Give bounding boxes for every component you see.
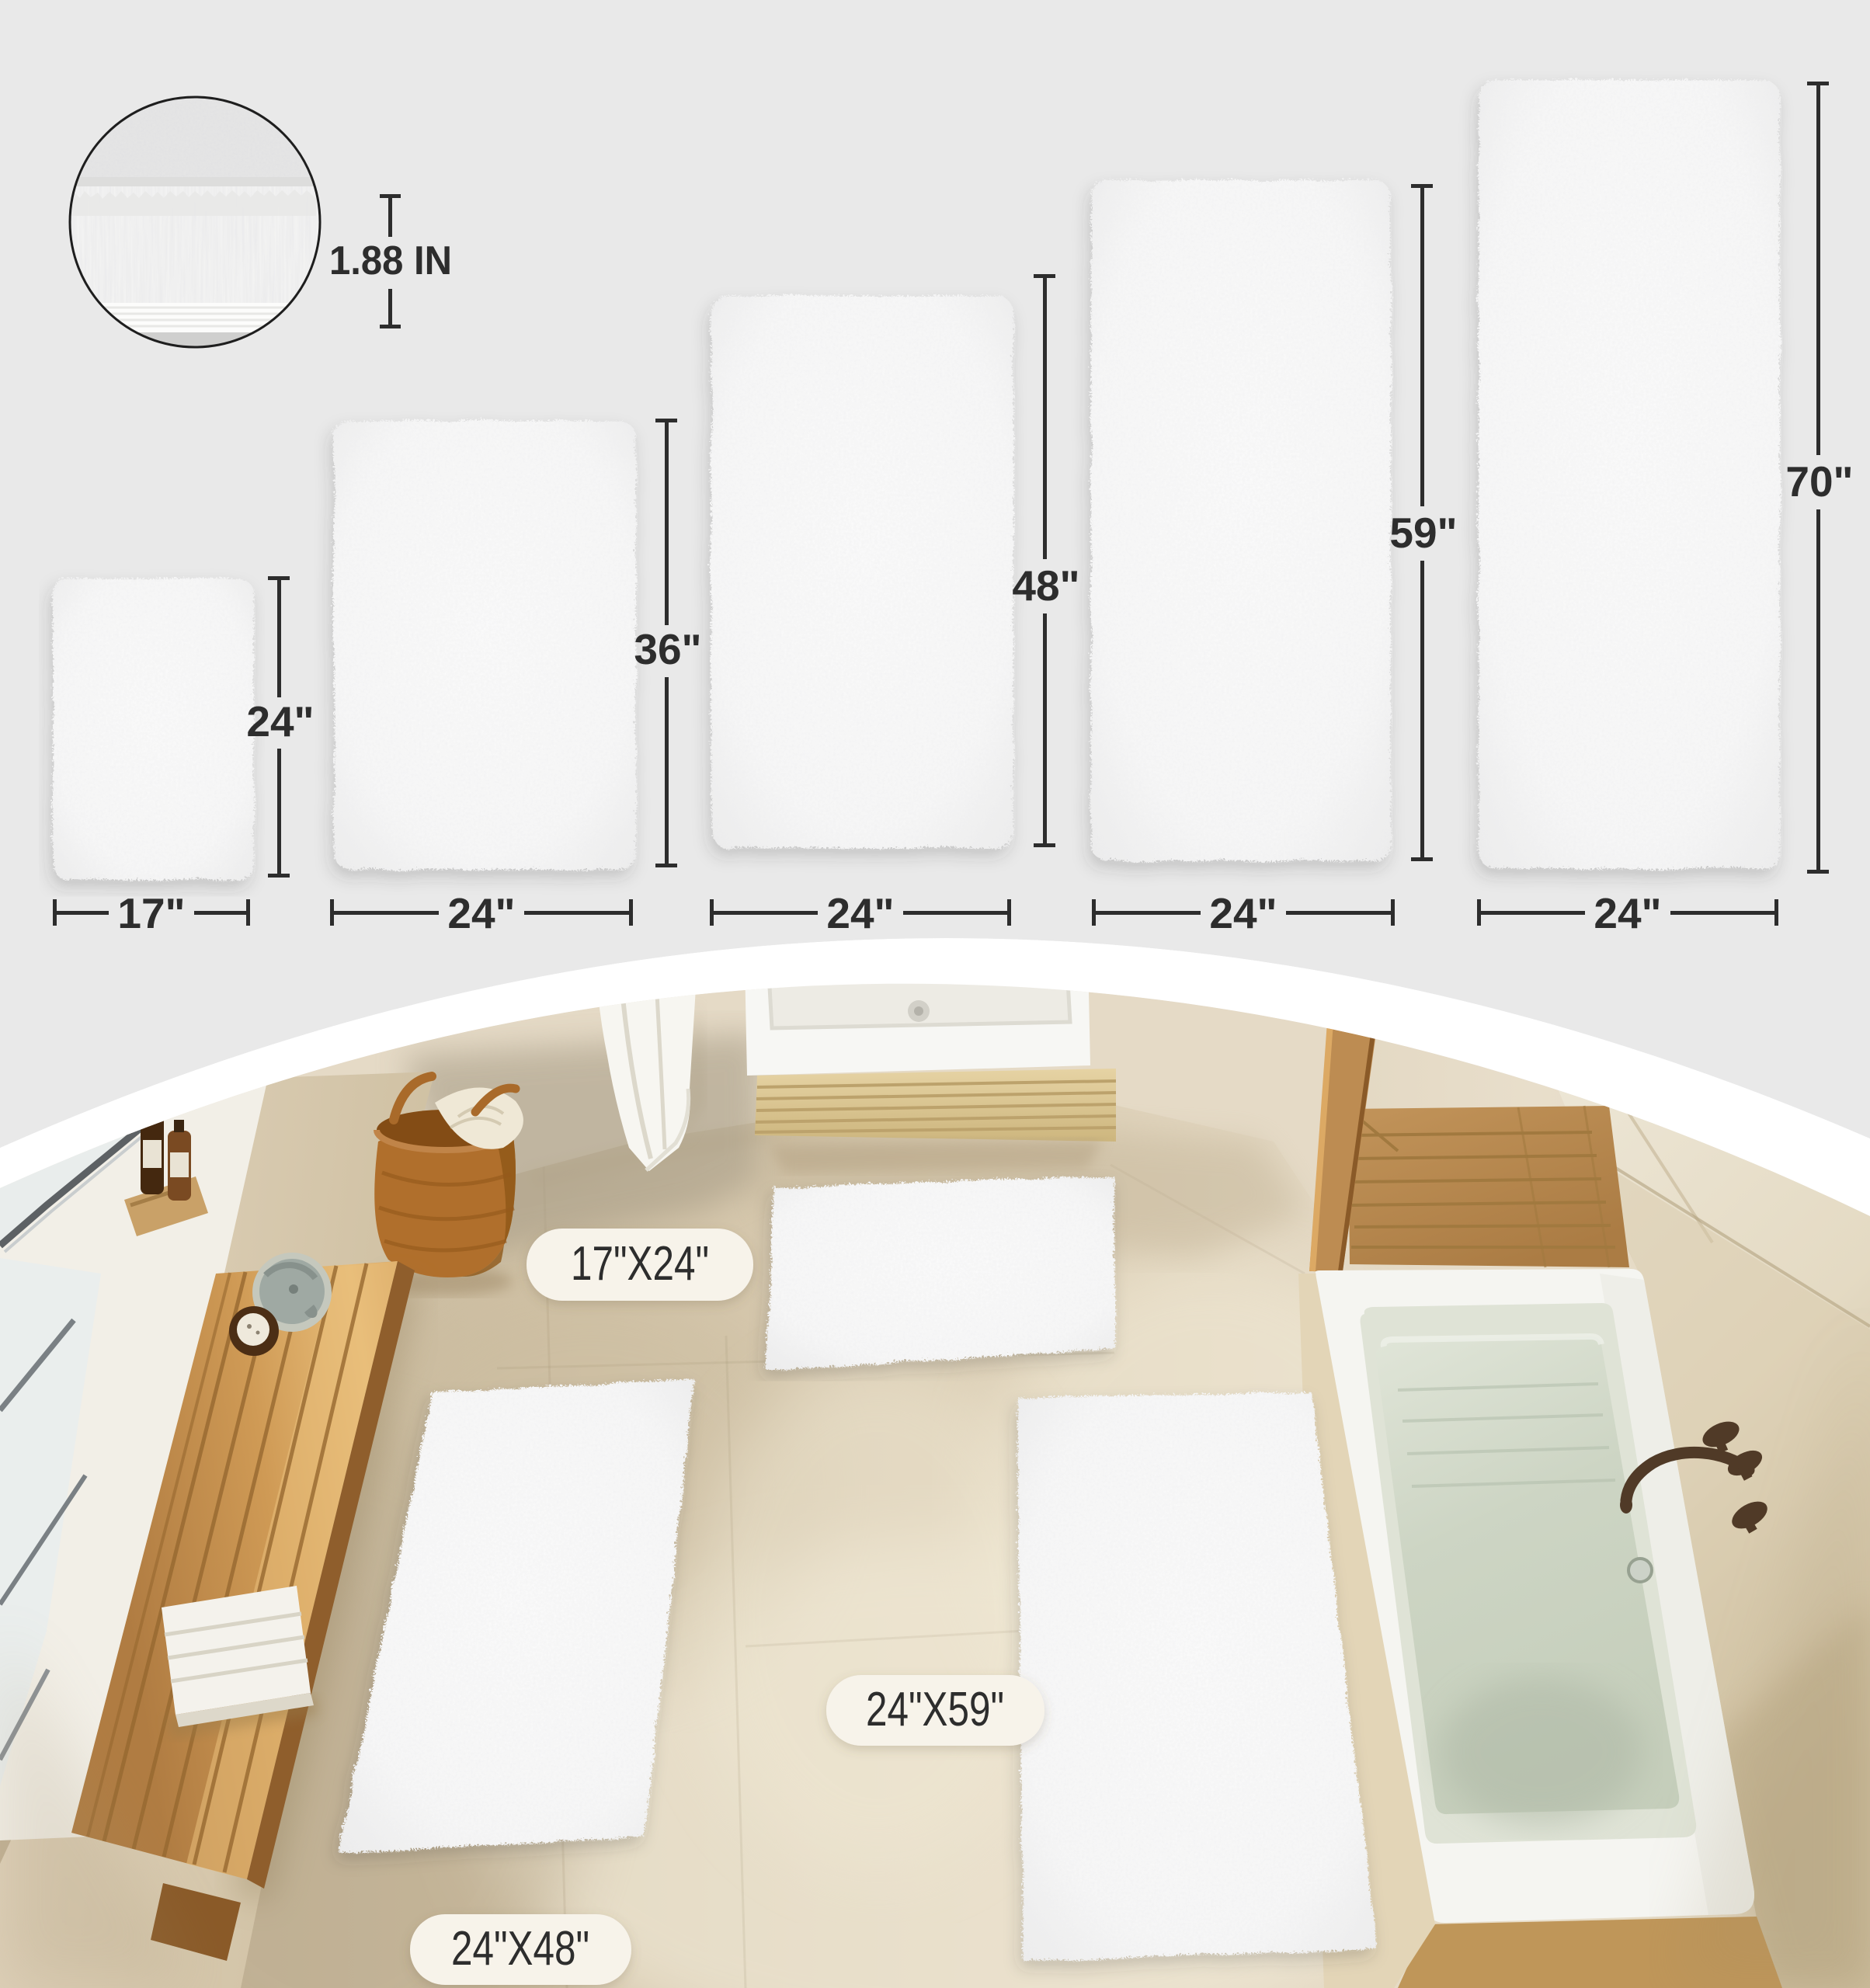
svg-text:24": 24": [1209, 889, 1277, 937]
svg-text:70": 70": [1785, 457, 1853, 506]
svg-text:24"X59": 24"X59": [866, 1683, 1004, 1736]
svg-text:36": 36": [634, 625, 701, 673]
svg-text:24": 24": [447, 889, 515, 937]
svg-text:24": 24": [1594, 889, 1661, 937]
svg-text:17"X24": 17"X24": [571, 1237, 709, 1291]
svg-text:59": 59": [1389, 509, 1457, 557]
svg-text:24": 24": [246, 697, 314, 745]
svg-text:48": 48": [1012, 561, 1079, 610]
svg-text:24": 24": [826, 889, 894, 937]
svg-text:24"X48": 24"X48": [451, 1922, 589, 1976]
svg-text:1.88 IN: 1.88 IN: [329, 238, 452, 283]
svg-text:17": 17": [117, 889, 185, 937]
